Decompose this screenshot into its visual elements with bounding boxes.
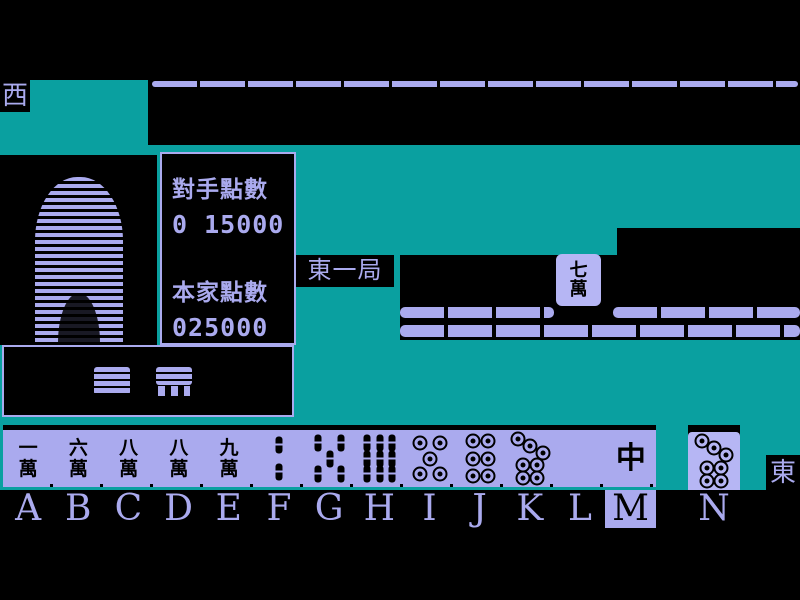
circle-pip xyxy=(480,451,495,466)
hand-tile-H-9-bamboo[interactable] xyxy=(355,430,405,487)
bamboo-stick xyxy=(376,434,383,451)
key-label: I xyxy=(422,490,436,528)
hand-tile-B-6-characters[interactable]: 六萬 xyxy=(53,430,103,487)
bamboo-stick xyxy=(376,466,383,483)
bamboo-stick xyxy=(389,434,396,451)
hand-tile-A-1-characters[interactable]: 一萬 xyxy=(3,430,53,487)
tile-key-F[interactable]: F xyxy=(254,490,304,530)
discarded-tile-7man: 七 萬 xyxy=(556,254,601,306)
opponent-score-value: 0 15000 xyxy=(172,210,286,239)
east-seat-indicator: 東 xyxy=(766,455,800,500)
hand-tile-F-2-bamboo[interactable] xyxy=(254,430,304,487)
bamboo-stick xyxy=(314,434,321,451)
hand-tile-D-8-characters[interactable]: 八萬 xyxy=(154,430,204,487)
east-seat-label: 東 xyxy=(770,458,796,488)
sticks-panel xyxy=(2,345,294,417)
table-area-upper xyxy=(617,228,800,256)
player-hand: 一萬六萬八萬八萬九萬中 xyxy=(3,425,656,487)
tile-glyph-6-characters: 六萬 xyxy=(53,430,103,487)
table-stack-icon xyxy=(156,367,192,385)
wall-row-1-left xyxy=(400,307,554,318)
circle-pip xyxy=(465,434,480,449)
tile-glyph-8-characters: 八萬 xyxy=(103,430,153,487)
tile-key-D[interactable]: D xyxy=(154,490,204,530)
key-label: B xyxy=(65,490,91,528)
tile-key-C[interactable]: C xyxy=(103,490,153,530)
key-label: L xyxy=(568,490,592,528)
bamboo-stick xyxy=(326,450,333,467)
mahjong-game-screen: 西 對手點數 0 15000 本家點數 025000 東一局 七 萬 一萬六萬八… xyxy=(0,0,800,600)
bamboo-stick xyxy=(389,466,396,483)
circle-pip xyxy=(480,434,495,449)
bamboo-stick xyxy=(276,464,283,481)
tile-key-E[interactable]: E xyxy=(204,490,254,530)
tile-key-H[interactable]: H xyxy=(354,490,404,530)
bamboo-stick xyxy=(364,434,371,451)
opponent-figure-panel xyxy=(0,155,157,345)
tile-key-J[interactable]: J xyxy=(455,490,505,530)
tile-key-B[interactable]: B xyxy=(53,490,103,530)
selected-key-label: M xyxy=(605,490,656,528)
circle-pip xyxy=(480,468,495,483)
circle-pip xyxy=(433,467,448,482)
score-panel: 對手點數 0 15000 本家點數 025000 xyxy=(160,152,296,345)
tile-key-I[interactable]: I xyxy=(404,490,454,530)
tile-glyph-1-characters: 一萬 xyxy=(3,430,53,487)
bamboo-stick xyxy=(389,450,396,467)
discard-char-top: 七 xyxy=(570,261,588,280)
west-seat-indicator: 西 xyxy=(0,80,30,112)
tile-key-K[interactable]: K xyxy=(505,490,555,530)
tile-key-A[interactable]: A xyxy=(3,490,53,530)
hand-tile-E-9-characters[interactable]: 九萬 xyxy=(204,430,254,487)
hand-tile-C-8-characters[interactable]: 八萬 xyxy=(103,430,153,487)
tile-key-G[interactable]: G xyxy=(304,490,354,530)
player-score-value: 025000 xyxy=(172,313,286,342)
west-seat-label: 西 xyxy=(2,81,28,111)
bamboo-stick xyxy=(338,434,345,451)
hand-tile-I-5-circles[interactable] xyxy=(405,430,455,487)
circle-pip xyxy=(412,467,427,482)
circle-pip xyxy=(422,451,437,466)
round-indicator: 東一局 xyxy=(296,255,394,287)
round-label: 東一局 xyxy=(308,256,383,284)
circle-pip xyxy=(465,468,480,483)
player-score-label: 本家點數 xyxy=(172,273,286,307)
circle-pip xyxy=(530,470,545,485)
key-label: D xyxy=(164,490,193,528)
discard-char-bottom: 萬 xyxy=(570,280,588,299)
key-label: A xyxy=(15,490,41,528)
drawn-tile-face xyxy=(688,432,740,490)
hand-tile-M-red-dragon[interactable]: 中 xyxy=(606,430,656,487)
bamboo-stick xyxy=(338,466,345,483)
tile-stack-icon xyxy=(94,367,130,395)
tile-glyph-red-dragon: 中 xyxy=(606,430,656,487)
bamboo-stick xyxy=(376,450,383,467)
tile-key-N[interactable]: N xyxy=(688,490,740,528)
key-label: F xyxy=(266,490,291,528)
tile-key-L[interactable]: L xyxy=(555,490,605,530)
tile-key-row: ABCDEFGHIJKLM xyxy=(3,490,656,530)
circle-pip xyxy=(699,473,714,488)
face-down-tiles-edge xyxy=(152,81,798,87)
circle-pip xyxy=(433,435,448,450)
opponent-wall-row xyxy=(148,80,800,145)
hand-tile-K-7-circles[interactable] xyxy=(505,430,555,487)
tile-glyph-8-characters: 八萬 xyxy=(154,430,204,487)
bamboo-stick xyxy=(364,450,371,467)
wall-row-1-right xyxy=(613,307,800,318)
circle-pip xyxy=(714,473,729,488)
tile-glyph-9-characters: 九萬 xyxy=(204,430,254,487)
key-label: K xyxy=(516,490,543,528)
opponent-score-label: 對手點數 xyxy=(172,170,286,204)
tile-key-M[interactable]: M xyxy=(605,490,656,530)
hand-tile-L-empty-slot[interactable] xyxy=(556,430,606,487)
bamboo-stick xyxy=(314,466,321,483)
bamboo-stick xyxy=(276,436,283,453)
key-label: J xyxy=(472,490,486,528)
circle-pip xyxy=(412,435,427,450)
hand-tile-G-5-bamboo[interactable] xyxy=(304,430,354,487)
key-label: C xyxy=(115,490,143,528)
hand-tile-J-6-circles[interactable] xyxy=(455,430,505,487)
drawn-tile[interactable] xyxy=(688,425,740,490)
key-label: G xyxy=(315,490,344,528)
key-label: E xyxy=(216,490,242,528)
wall-row-2 xyxy=(400,325,800,337)
key-label: H xyxy=(364,490,395,528)
circle-pip xyxy=(516,470,531,485)
circle-pip xyxy=(465,451,480,466)
bamboo-stick xyxy=(364,466,371,483)
drawn-key-label: N xyxy=(698,488,730,529)
